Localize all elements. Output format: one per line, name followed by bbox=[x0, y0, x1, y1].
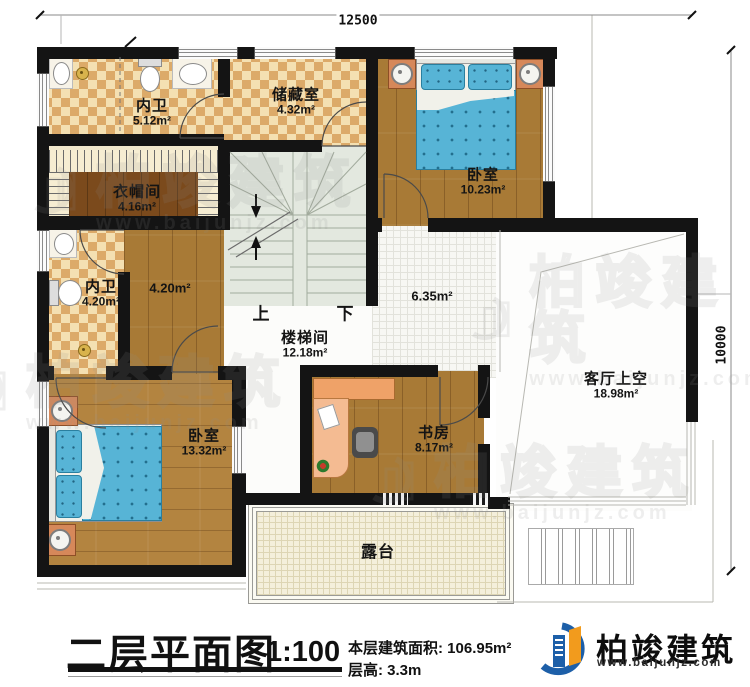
plan-scale: 1:100 bbox=[266, 636, 340, 669]
room-label-study: 书房8.17m² bbox=[415, 424, 453, 455]
room-label-corridor: 6.35m² bbox=[411, 290, 452, 305]
dimension-right: 10000 bbox=[715, 325, 730, 364]
plan-linework bbox=[0, 0, 750, 687]
room-label-terrace: 露台 bbox=[361, 544, 395, 562]
room-label-bathroom2: 内卫4.20m² bbox=[82, 278, 120, 309]
floor-plan-canvas: 12500 10000 内卫5.12m² 储藏室4.32m² 卧室10.23m²… bbox=[0, 0, 750, 687]
room-label-bedroom-tr: 卧室10.23m² bbox=[461, 166, 506, 197]
floor-height-text: 层高: 3.3m bbox=[348, 659, 421, 680]
room-label-cloakroom: 衣帽间4.16m² bbox=[113, 183, 161, 214]
room-label-stairwell: 楼梯间12.18m² bbox=[281, 329, 329, 360]
stair-down-label: 下 bbox=[337, 300, 354, 325]
room-label-living-void: 客厅上空18.98m² bbox=[584, 370, 648, 401]
company-logo-icon bbox=[536, 620, 592, 682]
stair-up-label: 上 bbox=[253, 300, 270, 325]
company-logo-website: www.baijunjz.com bbox=[597, 657, 722, 669]
dimension-top: 12500 bbox=[336, 14, 379, 29]
room-label-bathroom1: 内卫5.12m² bbox=[133, 97, 171, 128]
stair-treads bbox=[230, 152, 366, 306]
room-label-bedroom-bl: 卧室13.32m² bbox=[182, 427, 227, 458]
room-label-storage: 储藏室4.32m² bbox=[272, 86, 320, 117]
door-arcs bbox=[56, 94, 488, 428]
dimension-lines bbox=[36, 11, 735, 575]
title-underline-thin bbox=[68, 676, 342, 677]
room-label-hallway: 4.20m² bbox=[149, 282, 190, 297]
floor-area-text: 本层建筑面积: 106.95m² bbox=[348, 637, 511, 658]
